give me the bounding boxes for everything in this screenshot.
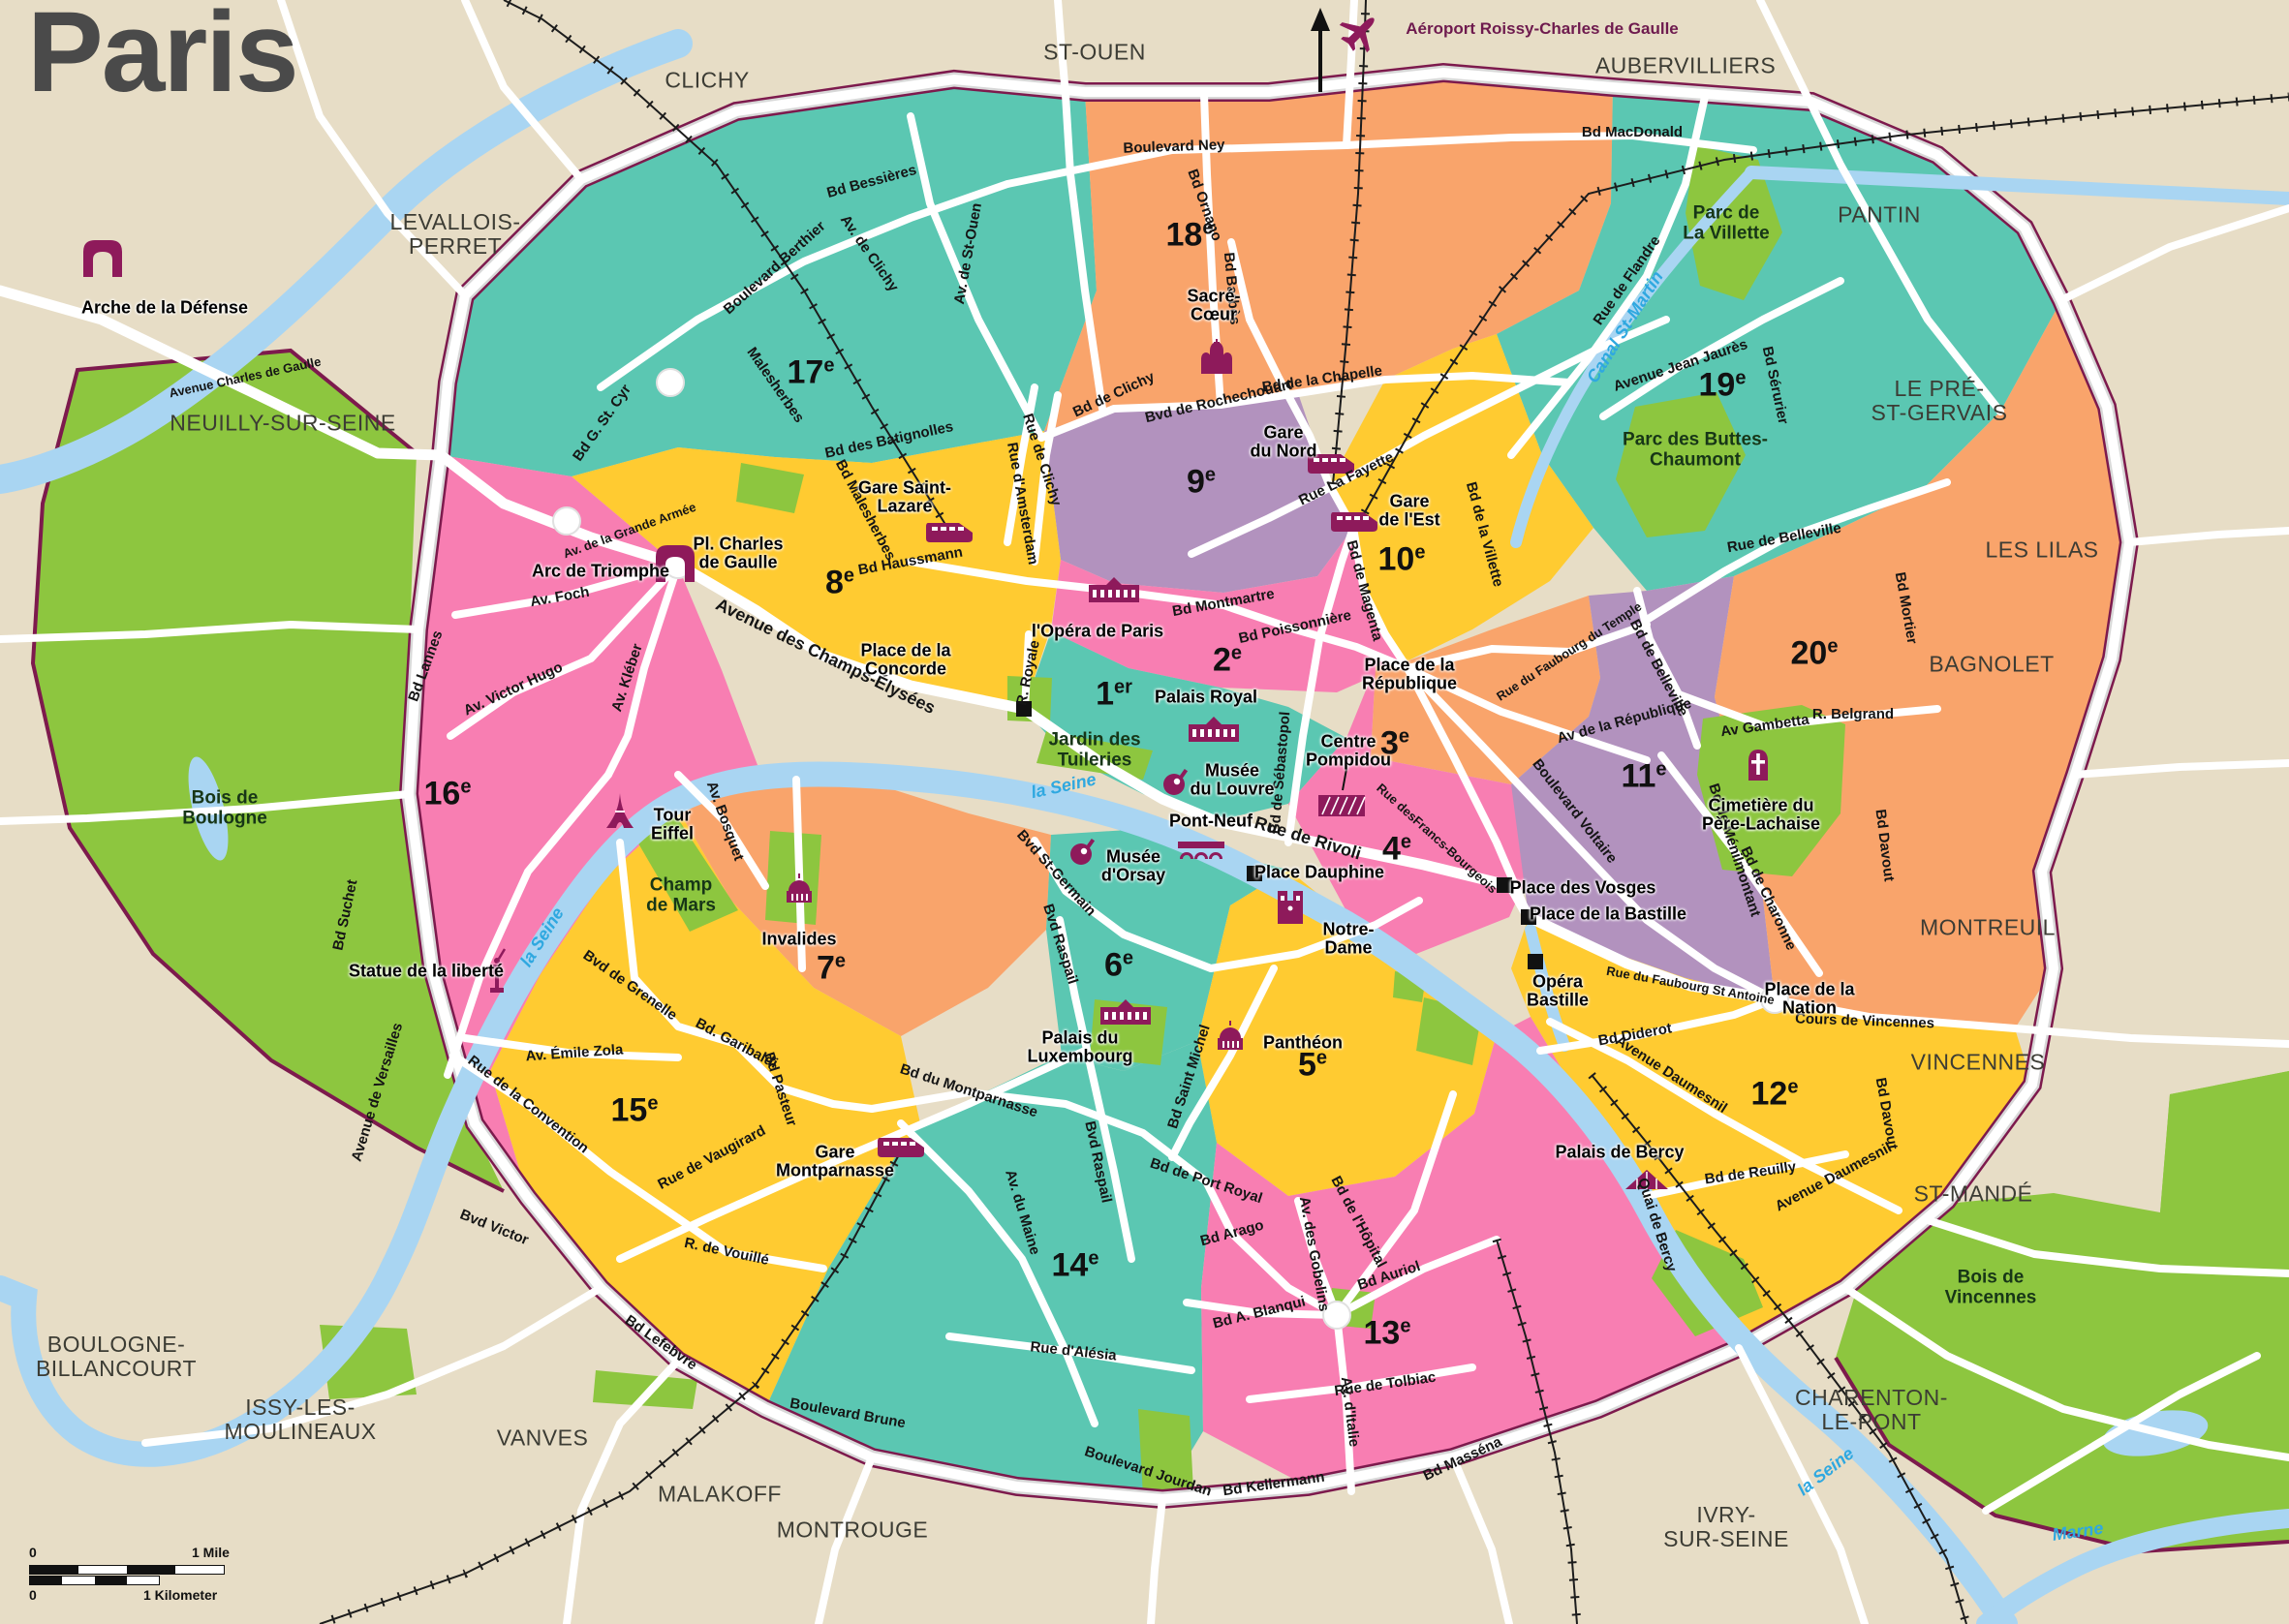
street-label-avenue-des-champs-élysées: Avenue des Champs-Élysées: [713, 596, 939, 719]
street-label-av-kléber: Av. Kléber: [609, 642, 646, 714]
street-label-bd-masséna: Bd Masséna: [1421, 1434, 1504, 1485]
landmark-label-gare-saint--lazare: Gare Saint- Lazare: [858, 479, 951, 517]
landmark-label-lopéra-de-paris: l'Opéra de Paris: [1032, 622, 1163, 640]
street-label-rue-du-faubourg-st-antoine: Rue du Faubourg St Antoine: [1605, 965, 1776, 1007]
district-label-18e: 18e: [1166, 218, 1214, 254]
street-label-av-bosquet: Av. Bosquet: [703, 780, 747, 863]
district-number: 17: [788, 354, 824, 391]
landmark-label-sacré--cur: Sacré- Cœur: [1187, 288, 1240, 325]
scale-segment: [127, 1566, 175, 1574]
district-label-7e: 7e: [817, 951, 846, 987]
suburb-label-levallois--perret: LEVALLOIS- PERRET: [390, 210, 521, 259]
district-number: 7: [817, 950, 835, 987]
street-label-bd-ornano: Bd Ornano: [1184, 168, 1224, 243]
district-number: 5: [1298, 1047, 1316, 1084]
street-label-bvd-de-grenelle: Bvd de Grenelle: [580, 948, 680, 1025]
scale-segment: [30, 1566, 78, 1574]
district-number: 11: [1621, 758, 1655, 795]
street-label-av-foch: Av. Foch: [529, 585, 591, 611]
street-label-av-de-clichy: Av. de Clichy: [837, 212, 901, 294]
district-number: 12: [1751, 1076, 1788, 1113]
street-label-bd-a-blanqui: Bd A. Blanqui: [1212, 1294, 1308, 1332]
landmark-label-notre--dame: Notre- Dame: [1323, 921, 1375, 959]
district-suffix: e: [1399, 725, 1409, 747]
street-label-bd-arago: Bd Arago: [1199, 1218, 1266, 1250]
scale-segment: [30, 1577, 62, 1584]
street-label-boulevard-brune: Boulevard Brune: [789, 1396, 907, 1432]
street-label-av-ditalie: Av. d'Italie: [1338, 1376, 1362, 1448]
scale-segment: [62, 1577, 94, 1584]
street-label-r-royale: R. Royale: [1014, 639, 1043, 707]
street-label-bd-malesherbes: Bd Malesherbes: [832, 457, 898, 563]
scale-zero-mile: 0: [29, 1545, 37, 1560]
scale-segment: [127, 1577, 159, 1584]
landmark-label-place-de-la-nation: Place de la Nation: [1764, 981, 1854, 1019]
street-label-bd-macdonald: Bd MacDonald: [1582, 125, 1683, 140]
park-label-bois-de-vincennes: Bois de Vincennes: [1945, 1268, 2037, 1307]
street-label-boulevard-ney: Boulevard Ney: [1123, 138, 1225, 157]
district-number: 4: [1382, 831, 1401, 868]
district-label-11e: 11e: [1621, 759, 1666, 795]
district-number: 2: [1213, 642, 1231, 679]
street-label-bd-suchet: Bd Suchet: [330, 878, 360, 952]
district-label-6e: 6e: [1104, 948, 1133, 984]
park-label-champ-de-mars: Champ de Mars: [646, 875, 716, 915]
district-number: 8: [825, 565, 844, 601]
street-label-bd-kellermann: Bd Kellermann: [1222, 1470, 1325, 1500]
scale-km-bar: [29, 1576, 160, 1585]
district-suffix: e: [460, 776, 471, 797]
suburb-label-boulogne--billancourt: BOULOGNE- BILLANCOURT: [36, 1333, 197, 1381]
street-label-bd-de-sébastopol: Bd de Sébastopol: [1267, 711, 1293, 835]
district-suffix: e: [1401, 831, 1411, 852]
street-label-rue-de-vaugirard: Rue de Vaugirard: [656, 1123, 769, 1193]
district-label-9e: 9e: [1187, 465, 1216, 501]
scale-bar: 0 1 Mile 0 1 Kilometer: [29, 1545, 281, 1612]
street-label-bd-saint-michel: Bd Saint Michel: [1165, 1023, 1214, 1130]
district-suffix: e: [1655, 758, 1666, 780]
street-label-av-des-gobelins: Av. des Gobelins: [1296, 1195, 1332, 1312]
scale-mile-bar: [29, 1565, 225, 1575]
district-label-14e: 14e: [1052, 1248, 1099, 1284]
district-number: 3: [1380, 725, 1399, 762]
district-label-10e: 10e: [1378, 542, 1426, 578]
street-label-bd-davout: Bd Davout: [1871, 809, 1896, 882]
landmark-label-pl-charles-de-gaulle: Pl. Charles de Gaulle: [693, 536, 783, 573]
street-label-bd-de-magenta: Bd de Magenta: [1343, 538, 1384, 642]
landmark-label-panthéon: Panthéon: [1263, 1033, 1343, 1052]
street-label-bd-barbs: Bd Barbès: [1221, 252, 1243, 325]
landmark-label-arc-de-triomphe: Arc de Triomphe: [532, 562, 669, 580]
street-label-bd-de-clichy: Bd de Clichy: [1070, 369, 1157, 420]
street-label-boulevard-jourdan: Boulevard Jourdan: [1082, 1444, 1213, 1500]
street-label-quai-de-bercy: Quai de Bercy: [1634, 1177, 1680, 1274]
street-label-rue-desfrancs-bourgeois: Rue desFrancs-Bourgeois: [1374, 781, 1500, 897]
street-label-bd-de-reuilly: Bd de Reuilly: [1704, 1159, 1797, 1187]
water-label-marne-4: Marne: [2051, 1519, 2104, 1546]
district-label-2e: 2e: [1213, 643, 1242, 679]
landmark-label-palais-du-luxembourg: Palais du Luxembourg: [1027, 1029, 1132, 1067]
suburb-label-issy-les--moulineaux: ISSY-LES- MOULINEAUX: [224, 1395, 376, 1444]
district-suffix: e: [1231, 642, 1242, 663]
street-label-r-de-vouillé: R. de Vouillé: [683, 1236, 770, 1269]
landmark-label-place-de-la-bastille: Place de la Bastille: [1530, 904, 1686, 923]
suburb-label-bagnolet: BAGNOLET: [1929, 653, 2054, 677]
district-label-13e: 13e: [1364, 1316, 1411, 1352]
landmark-label-place-dauphine: Place Dauphine: [1254, 863, 1384, 881]
park-label-parc-des-buttes--chaumont: Parc des Buttes- Chaumont: [1623, 430, 1768, 470]
street-label-bd-lannes: Bd Lannes: [406, 628, 446, 704]
suburb-label-le-pré--st-gervais: LE PRÉ- ST-GERVAIS: [1871, 377, 2008, 425]
district-label-8e: 8e: [825, 566, 854, 601]
district-number: 9: [1187, 464, 1205, 501]
district-suffix: e: [1123, 947, 1133, 968]
district-suffix: er: [1114, 676, 1132, 697]
water-label-canal-st-martin-3: Canal St-Martin: [1584, 268, 1667, 386]
landmark-label-place-de-la-république: Place de la République: [1362, 657, 1457, 694]
street-label-bd-de-port-royal: Bd de Port Royal: [1148, 1156, 1264, 1208]
district-suffix: e: [1735, 367, 1746, 388]
district-number: 14: [1052, 1247, 1089, 1284]
street-label-bd-de-la-villette: Bd de la Villette: [1463, 480, 1505, 589]
street-label-bd-de-lhpital: Bd de l'Hôpital: [1327, 1174, 1388, 1271]
district-suffix: e: [1202, 217, 1213, 238]
landmark-label-invalides: Invalides: [761, 930, 836, 948]
scale-mile-label: 1 Mile: [192, 1545, 230, 1560]
street-label-avenue-daumesnil: Avenue Daumesnil: [1613, 1033, 1730, 1117]
street-label-bd-sérurier: Bd Sérurier: [1759, 345, 1791, 425]
scale-km-label: 1 Kilometer: [143, 1587, 217, 1603]
suburb-label-aubervilliers: AUBERVILLIERS: [1595, 54, 1776, 78]
landmark-label-place-des-vosges: Place des Vosges: [1510, 878, 1656, 897]
street-label-boulevard-berthier: Boulevard Berthier: [721, 219, 828, 318]
street-label-rue-dalésia: Rue d'Alésia: [1030, 1339, 1118, 1364]
street-label-av-gambetta: Av Gambetta: [1719, 713, 1810, 741]
district-number: 18: [1166, 217, 1203, 254]
water-label-la-seine-2: la Seine: [1794, 1444, 1858, 1499]
street-label-av-de-la-grande-armée: Av. de la Grande Armée: [562, 501, 698, 562]
suburb-label-charenton--le-pont: CHARENTON- LE-PONT: [1795, 1386, 1948, 1434]
landmark-label-statue-de-la-liberté: Statue de la liberté: [349, 962, 504, 980]
district-number: 1: [1096, 676, 1114, 713]
street-label-bd-des-batignolles: Bd des Batignolles: [823, 419, 954, 462]
street-label-av-victor-hugo: Av. Victor Hugo: [461, 659, 565, 719]
street-label-bd-poissonnire: Bd Poissonnière: [1237, 608, 1352, 647]
street-label-avenue-de-versailles: Avenue de Versailles: [350, 1022, 407, 1164]
park-label-bois-de-boulogne: Bois de Boulogne: [182, 788, 267, 828]
street-label-bd-du-montparnasse: Bd du Montparnasse: [898, 1061, 1039, 1120]
street-label-malesherbes: Malesherbes: [743, 345, 806, 426]
district-number: 15: [611, 1092, 648, 1129]
street-label-rue-du-faubourg-du-temple: Rue du Faubourg du Temple: [1495, 599, 1645, 703]
street-label-bd-mortier: Bd Mortier: [1892, 571, 1920, 646]
street-label-avenue-charles-de-gaulle: Avenue Charles de Gaulle: [168, 355, 322, 401]
street-label-bd-garibaldi: Bd. Garibaldi: [693, 1016, 780, 1072]
suburb-label-pantin: PANTIN: [1838, 203, 1921, 228]
district-label-4e: 4e: [1382, 832, 1411, 868]
map-labels-layer: LEVALLOIS- PERRETNEUILLY-SUR-SEINECLICHY…: [0, 0, 2289, 1624]
street-label-bd-lefebvre: Bd Lefebvre: [622, 1313, 699, 1374]
district-label-3e: 3e: [1380, 726, 1409, 762]
landmark-label-palais-de-bercy: Palais de Bercy: [1555, 1143, 1684, 1161]
landmark-label-arche-de-la-défense: Arche de la Défense: [81, 298, 248, 317]
district-number: 10: [1378, 541, 1415, 578]
district-label-5e: 5e: [1298, 1048, 1327, 1084]
street-label-rue-de-la-convention: Rue de la Convention: [465, 1053, 592, 1156]
landmark-label-centre-pompidou: Centre Pompidou: [1306, 733, 1391, 771]
street-label-bvd-raspail: Bvd Raspail: [1039, 903, 1080, 987]
suburb-label-neuilly-sur-seine: NEUILLY-SUR-SEINE: [170, 412, 395, 436]
street-label-bd-davout: Bd Davout: [1872, 1077, 1901, 1151]
street-label-bd-bessires: Bd Bessières: [825, 163, 918, 201]
landmark-label-place-de-la-concorde: Place de la Concorde: [860, 642, 950, 680]
landmark-label-musée-du-louvre: Musée du Louvre: [1190, 762, 1274, 800]
street-label-bd-montmartre: Bd Montmartre: [1171, 587, 1276, 620]
scale-zero-km: 0: [29, 1587, 37, 1603]
district-number: 16: [424, 776, 461, 812]
landmark-label-tour-eiffel: Tour Eiffel: [651, 807, 694, 844]
street-label-rue-de-rivoli: Rue de Rivoli: [1253, 813, 1364, 864]
district-suffix: e: [823, 354, 834, 376]
map-title: Paris: [27, 0, 297, 118]
district-label-12e: 12e: [1751, 1077, 1799, 1113]
suburb-label-clichy: CLICHY: [665, 69, 749, 93]
district-suffix: e: [835, 950, 846, 971]
district-suffix: e: [1205, 464, 1216, 485]
landmark-label-gare-de-lest: Gare de l'Est: [1378, 493, 1439, 531]
district-label-20e: 20e: [1791, 636, 1839, 672]
street-label-r-belgrand: R. Belgrand: [1812, 707, 1894, 722]
street-label-bd-de-ménilmontant: Bd de Ménilmontant: [1705, 781, 1763, 918]
street-label-av-émile-zola: Av. Émile Zola: [525, 1042, 624, 1064]
district-label-1er: 1er: [1096, 677, 1132, 713]
landmark-label-opéra-bastille: Opéra Bastille: [1527, 973, 1589, 1011]
street-label-bd-haussmann: Bd Haussmann: [857, 545, 964, 579]
street-label-bvd-victor: Bvd Victor: [457, 1207, 530, 1248]
suburb-label-les-lilas: LES LILAS: [1985, 538, 2098, 563]
landmark-label-musée-dorsay: Musée d'Orsay: [1101, 848, 1165, 886]
landmark-label-cimetire-du-pre-lachaise: Cimetière du Père-Lachaise: [1702, 797, 1820, 835]
park-label-jardin-des-tuileries: Jardin des Tuileries: [1048, 730, 1140, 770]
district-suffix: e: [1088, 1247, 1098, 1269]
suburb-label-montrouge: MONTROUGE: [777, 1518, 929, 1543]
district-suffix: e: [1400, 1315, 1410, 1336]
district-number: 6: [1104, 947, 1123, 984]
water-label-la-seine-0: la Seine: [1030, 770, 1098, 802]
district-number: 13: [1364, 1315, 1401, 1352]
street-label-bd-auriol: Bd Auriol: [1356, 1259, 1423, 1294]
street-label-rue-damsterdam: Rue d'Amsterdam: [1004, 442, 1040, 567]
street-label-bvd-st-germain: Bvd St-Germain: [1013, 827, 1098, 919]
suburb-label-vanves: VANVES: [497, 1426, 589, 1451]
scale-segment: [175, 1566, 224, 1574]
street-label-av-de-la-république: Av de la République: [1556, 696, 1693, 748]
street-label-bd-de-la-chapelle: Bd de la Chapelle: [1261, 363, 1383, 395]
street-label-bvd-raspail: Bvd Raspail: [1081, 1119, 1114, 1204]
water-label-la-seine-1: la Seine: [517, 904, 569, 970]
street-label-bd-de-charonne: Bd de Charonne: [1737, 844, 1799, 953]
street-label-cours-de-vincennes: Cours de Vincennes: [1795, 1011, 1934, 1031]
street-label-av-du-maine: Av. du Maine: [1002, 1168, 1042, 1257]
district-label-16e: 16e: [424, 777, 472, 812]
street-label-bd-g-st-cyr: Bd G. St. Cyr: [571, 382, 634, 464]
airport-label: Aéroport Roissy-Charles de Gaulle: [1406, 20, 1679, 38]
street-label-bd-diderot: Bd Diderot: [1597, 1021, 1673, 1049]
district-suffix: e: [1316, 1047, 1327, 1068]
park-label-parc-de-la-villette: Parc de La Villette: [1683, 203, 1769, 243]
street-label-rue-de-flandre: Rue de Flandre: [1591, 233, 1663, 328]
district-label-17e: 17e: [788, 355, 835, 391]
street-label-rue-de-clichy: Rue de Clichy: [1019, 412, 1064, 507]
suburb-label-st-mandé: ST-MANDÉ: [1914, 1182, 2033, 1207]
district-number: 20: [1791, 635, 1828, 672]
street-label-boulevard-voltaire: Boulevard Voltaire: [1529, 756, 1620, 867]
suburb-label-malakoff: MALAKOFF: [658, 1483, 782, 1507]
paris-map: LEVALLOIS- PERRETNEUILLY-SUR-SEINECLICHY…: [0, 0, 2289, 1624]
landmark-label-gare-du-nord: Gare du Nord: [1251, 424, 1317, 462]
suburb-label-st-ouen: ST-OUEN: [1043, 41, 1146, 65]
district-suffix: e: [1827, 635, 1838, 657]
street-label-bd-pasteur: Bd Pasteur: [760, 1051, 799, 1128]
street-label-rue-de-belleville: Rue de Belleville: [1726, 521, 1842, 557]
district-suffix: e: [647, 1092, 658, 1114]
suburb-label-ivry--sur-seine: IVRY- SUR-SEINE: [1663, 1503, 1789, 1551]
street-label-avenue-jean-jaurs: Avenue Jean Jaurès: [1612, 337, 1749, 395]
district-suffix: e: [1414, 541, 1425, 563]
suburb-label-montreuil: MONTREUIL: [1920, 916, 2056, 940]
district-suffix: e: [844, 565, 854, 586]
landmark-label-palais-royal: Palais Royal: [1155, 688, 1257, 706]
landmark-label-gare-montparnasse: Gare Montparnasse: [776, 1144, 894, 1181]
scale-segment: [95, 1577, 127, 1584]
street-label-bvd-de-rochechouart: Bvd de Rochechouart: [1144, 378, 1294, 427]
street-label-bd-de-belleville: Bd de Belleville: [1626, 617, 1690, 719]
street-label-avenue-daumesnil: Avenue Daumesnil: [1773, 1140, 1895, 1214]
street-label-rue-la-fayette: Rue La Fayette: [1296, 449, 1396, 508]
district-suffix: e: [1787, 1076, 1798, 1097]
landmark-label-pont-neuf: Pont-Neuf: [1169, 812, 1253, 830]
scale-segment: [78, 1566, 127, 1574]
street-label-av-de-st-ouen: Av. de St-Ouen: [952, 201, 985, 305]
street-label-rue-de-tolbiac: Rue de Tolbiac: [1334, 1370, 1438, 1400]
district-number: 19: [1699, 367, 1736, 404]
district-label-19e: 19e: [1699, 368, 1747, 404]
district-label-15e: 15e: [611, 1093, 659, 1129]
suburb-label-vincennes: VINCENNES: [1911, 1051, 2046, 1075]
